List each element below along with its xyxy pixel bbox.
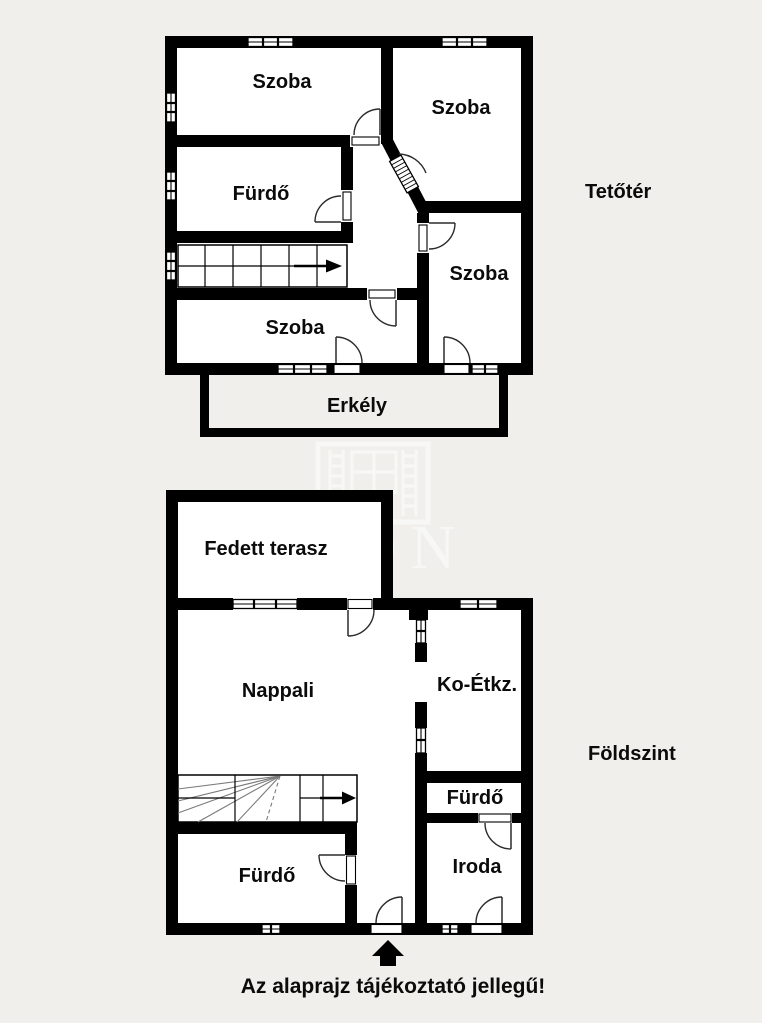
- attic-plan: Szoba Szoba Fürdő Szoba Szoba Erkély: [165, 36, 533, 437]
- ground-stairs: [178, 775, 357, 822]
- window-icon: [417, 620, 426, 643]
- window-icon: [167, 93, 176, 122]
- room-label-szoba-bottom-left: Szoba: [266, 317, 326, 339]
- floorplan-canvas: Szoba Szoba Fürdő Szoba Szoba Erkély Tet…: [0, 0, 762, 1023]
- window-icon: [167, 252, 176, 280]
- room-label-ko-etkz: Ko-Étkz.: [437, 673, 517, 696]
- room-label-erkely: Erkély: [327, 395, 388, 417]
- ground-floor-label: Földszint: [588, 743, 676, 765]
- entrance-arrow-icon: [372, 940, 404, 966]
- floorplan-drawing: Szoba Szoba Fürdő Szoba Szoba Erkély Tet…: [0, 0, 762, 1023]
- room-label-szoba-top-left: Szoba: [253, 71, 313, 93]
- room-label-szoba-bottom-right: Szoba: [450, 263, 510, 285]
- window-icon: [460, 600, 497, 609]
- disclaimer-text: Az alaprajz tájékoztató jellegű!: [241, 975, 546, 998]
- attic-floor-label: Tetőtér: [585, 181, 652, 203]
- window-icon: [233, 600, 297, 609]
- room-label-fedett-terasz: Fedett terasz: [204, 538, 327, 560]
- window-icon: [417, 728, 426, 753]
- window-icon: [248, 38, 293, 47]
- room-label-szoba-top-right: Szoba: [432, 97, 492, 119]
- window-icon: [442, 38, 487, 47]
- attic-stairs: [178, 245, 347, 287]
- window-icon: [472, 365, 498, 374]
- window-icon: [262, 925, 280, 934]
- room-label-furdo-upper: Fürdő: [447, 787, 504, 809]
- window-icon: [442, 925, 458, 934]
- room-label-furdo-attic: Fürdő: [233, 183, 290, 205]
- room-label-iroda: Iroda: [453, 856, 503, 878]
- window-icon: [167, 172, 176, 200]
- room-label-nappali: Nappali: [242, 680, 314, 702]
- ground-plan: Fedett terasz Nappali Ko-Étkz. Fürdő Iro…: [166, 490, 533, 935]
- window-icon: [278, 365, 327, 374]
- room-label-furdo-lower: Fürdő: [239, 865, 296, 887]
